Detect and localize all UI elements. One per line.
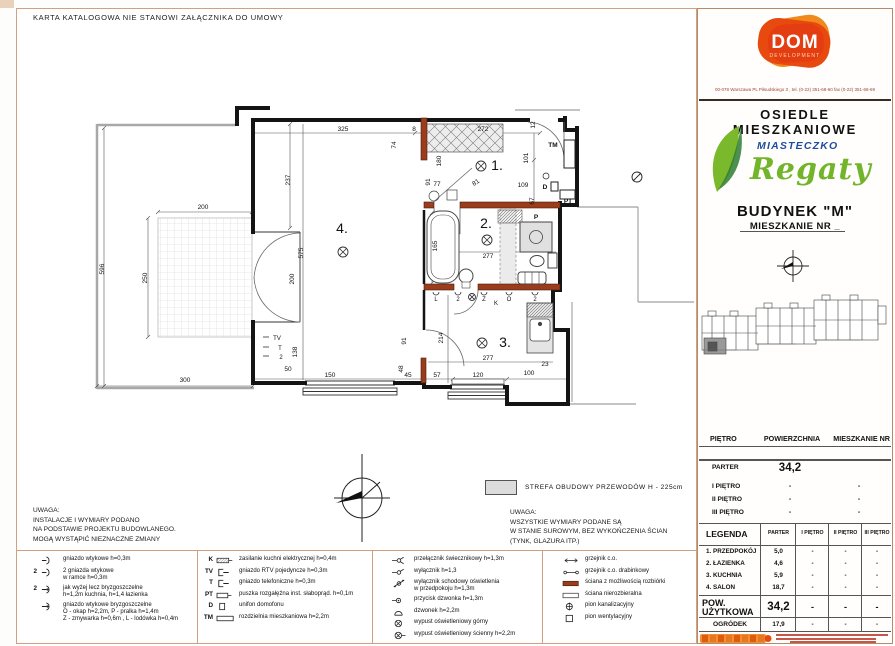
legend-item-text: wypust oświetleniowy ścienny h=2,2m (414, 631, 515, 638)
dimension-label: TM (548, 142, 557, 149)
ceiling-light-symbol (477, 338, 487, 348)
floor-table-row: II PIĘTRO-- (699, 494, 891, 507)
legend-item: 22 gniazda wtykowew ramce h=0,3m (26, 568, 194, 582)
terrace (158, 218, 252, 337)
legend-item: przełącznik świecznikowy h=1,3m (377, 556, 539, 565)
north-compass-icon (330, 452, 394, 544)
bell-icon (391, 608, 411, 617)
legend-col-walls: grzejnik c.o.grzejnik c.o. drabinkowyści… (548, 556, 694, 626)
address-divider (699, 99, 891, 101)
d-box (551, 182, 558, 191)
legend-item: wypust oświetleniowy górny (377, 619, 539, 628)
room-number-kuchnia: 3. (499, 334, 511, 350)
legend-item-text: wyłącznik schodowy oświetleniaw przedpok… (414, 579, 499, 593)
room-name: 1. PRZEDPOKÓJ (706, 548, 756, 555)
ogrodek-dash-3: - (862, 621, 892, 628)
brand-miasteczko: MIASTECZKO (757, 140, 838, 152)
bell-btn-icon (391, 596, 411, 605)
floor-table-row: I PIĘTRO-- (699, 481, 891, 494)
ceiling-light-symbol (338, 247, 348, 257)
light-symbols (338, 161, 492, 348)
dimension-label: 138 (292, 346, 299, 357)
ogrodek-value: 17,9 (761, 621, 796, 628)
dimension-label: 180 (436, 155, 443, 166)
dimension-label: P (534, 214, 539, 221)
kitchen-radiator (452, 379, 504, 384)
wall-brown-icon (562, 579, 582, 588)
dimension-label: 2 (533, 297, 537, 303)
legend-item: PTpuszka rozgałęźna inst. słaboprąd. h=0… (202, 591, 370, 600)
dimension-label: 57 (433, 372, 441, 379)
ceiling-light-symbol (476, 161, 486, 171)
legend-item: ściana nierozbieralna (548, 591, 694, 600)
dimension-label: 150 (325, 372, 336, 379)
pow-dash-3: - (862, 602, 892, 612)
pion-k-icon (562, 602, 582, 611)
room-area-value: - (829, 560, 862, 567)
legend-item: 2jak wyżej lecz bryzgoszczelneh=1,2m kuc… (26, 585, 194, 599)
socket-splash-icon (40, 585, 60, 594)
site-compass-icon (775, 250, 811, 282)
dimension-label: 2 (279, 355, 283, 361)
legend-item-text: przełącznik świecznikowy h=1,3m (414, 556, 504, 563)
title-underline (740, 231, 845, 232)
dimension-label: 200 (289, 273, 296, 284)
floor-table-cell: - (757, 496, 823, 503)
dimension-label: 8 (412, 126, 416, 133)
room-number-lazienka: 2. (480, 215, 492, 231)
floor-table-cell: - (831, 496, 887, 503)
footer-fineprint-line-3 (790, 641, 876, 643)
jack-icon (216, 568, 236, 577)
legend-item: grzejnik c.o. (548, 556, 694, 565)
floor-table-cell: 34,2 (757, 462, 823, 474)
legend-divider-3 (542, 550, 543, 644)
room-area-value: - (862, 584, 892, 591)
room-area-value: - (796, 572, 829, 579)
dimension-label: PT (564, 198, 572, 205)
room-number-salon: 4. (336, 220, 348, 236)
legend-item-text: rozdzielnia mieszkaniowa h=2,2m (239, 614, 329, 621)
dimension-label: 109 (518, 182, 529, 189)
legend-item-text: grzejnik c.o. (585, 556, 617, 563)
dimension-label: 596 (99, 263, 106, 274)
socket-icon (40, 568, 60, 577)
dimension-label: 50 (284, 366, 292, 373)
note-dimensions: UWAGA: WSZYSTKIE WYMIARY PODANE SĄ W STA… (510, 508, 695, 546)
brand-regaty: Regaty (750, 152, 872, 187)
pow-dash-2: - (829, 602, 862, 612)
legend-item-prefix: T (202, 579, 213, 586)
ceiling-light-symbol (482, 235, 492, 245)
legend-item-text: gniazdo wtykowe bryzgoszczelneO - okap h… (63, 602, 178, 624)
room-area-value: 5,0 (761, 548, 796, 555)
dimension-label: 67 (529, 197, 536, 205)
dimension-label: 300 (180, 377, 191, 384)
legend-table-title: LEGENDA (706, 529, 748, 539)
legend-table-bottom (699, 631, 891, 632)
legend-item-prefix: TM (202, 614, 213, 621)
dimension-label: 101 (523, 152, 530, 163)
floor-table-line-1 (699, 446, 891, 447)
room-area-value: 4,6 (761, 560, 796, 567)
washing-machine (520, 222, 552, 252)
legend-item-text: dzwonek h=2,2m (414, 608, 460, 615)
dimension-label: 77 (433, 181, 441, 188)
room-area-value: - (829, 572, 862, 579)
ptbox-icon (216, 591, 236, 600)
duct-zone-note: STREFA OBUDOWY PRZEWODÓW H - 225cm (485, 479, 683, 497)
dimension-label: 575 (298, 247, 305, 258)
legend-vline-1 (760, 523, 761, 631)
legend-item-text: unifon domofonu (239, 602, 284, 609)
legend-divider-1 (197, 550, 198, 644)
outer-walls (237, 108, 577, 404)
legend-item: wyłącznik schodowy oświetleniaw przedpok… (377, 579, 539, 593)
svg-text:DEVELOPMENT: DEVELOPMENT (770, 53, 821, 59)
floor-table-row: PARTER34,2 (699, 462, 891, 481)
floor-table-row: III PIĘTRO-- (699, 507, 891, 520)
legend-item: wyłącznik h=1,3 (377, 568, 539, 577)
company-address: 00-078 Warszawa PL Piłsudskiego 3 , tel.… (707, 88, 884, 93)
room-name: 3. KUCHNIA (706, 572, 742, 579)
dom-development-logo: DOM DEVELOPMENT (748, 10, 843, 76)
windows (253, 232, 508, 399)
legend-item: pion wentylacyjny (548, 614, 694, 623)
frame-corner-chip (0, 0, 14, 8)
legend-item-text: przycisk dzwonka h=1,3m (414, 596, 483, 603)
site-plan (700, 286, 890, 372)
room-area-value: - (829, 548, 862, 555)
floor-table-header-powierzchnia: POWIERZCHNIA (757, 434, 827, 443)
room-area-value: - (796, 548, 829, 555)
room-name: 2. ŁAZIENKA (706, 560, 745, 567)
legend-vline-2 (795, 523, 796, 631)
legend-col-switches: przełącznik świecznikowy h=1,3mwyłącznik… (377, 556, 539, 643)
dimension-label: 250 (142, 272, 149, 283)
footer-fineprint-line-1 (776, 634, 888, 636)
light-wall-icon (391, 631, 411, 640)
legend-item-prefix: 2 (26, 568, 37, 575)
dimension-label: TV (273, 336, 281, 342)
jack-icon (216, 579, 236, 588)
room-area-value: 5,9 (761, 572, 796, 579)
pow-dash-1: - (796, 602, 829, 612)
footer-fineprint-line-2 (776, 638, 876, 640)
dimension-label: 277 (483, 253, 494, 260)
ceiling-light-symbol (469, 294, 476, 301)
legend-item: pion kanalizacyjny (548, 602, 694, 611)
ogrodek-dash-2: - (829, 621, 862, 628)
dimension-label: 277 (483, 355, 494, 362)
dimension-label: 214 (438, 332, 445, 343)
legend-item-text: wypust oświetleniowy górny (414, 619, 488, 626)
legend-item: Kzasilanie kuchni elektrycznej h=0,4m (202, 556, 370, 565)
dimension-label: 91 (425, 178, 432, 186)
room-area-value: - (796, 584, 829, 591)
legend-item-text: zasilanie kuchni elektrycznej h=0,4m (239, 556, 337, 563)
legend-item-prefix: D (202, 602, 213, 609)
legend-item-text: 2 gniazda wtykowew ramce h=0,3m (63, 568, 114, 582)
ogrodek-label: OGRÓDEK (699, 621, 761, 628)
room-area-value: 18,7 (761, 584, 796, 591)
floor-table-line-2 (699, 459, 891, 461)
legend-item: przycisk dzwonka h=1,3m (377, 596, 539, 605)
tm-box (564, 140, 575, 168)
legend-item-text: puszka rozgałęźna inst. słaboprąd. h=0,1… (239, 591, 353, 598)
washbasin (459, 269, 473, 283)
sw-double-icon (391, 556, 411, 565)
legend-top-border (16, 550, 697, 551)
duct-zone-hatch (424, 124, 503, 152)
dimension-label: 81 (471, 178, 481, 188)
legend-item-prefix: PT (202, 591, 213, 598)
floor-table-header-mieszkanie: MIESZKANIE NR (832, 434, 890, 443)
socket-icon (40, 556, 60, 565)
pion-w-icon (562, 614, 582, 623)
legend-item-text: pion wentylacyjny (585, 614, 632, 621)
dimension-label: 200 (198, 204, 209, 211)
legend-item: wypust oświetleniowy ścienny h=2,2m (377, 631, 539, 640)
footer-logo (700, 633, 772, 644)
legend-col-header-p1: I PIĘTRO (796, 530, 829, 536)
legend-item-text: jak wyżej lecz bryzgoszczelneh=1,2m kuch… (63, 585, 148, 599)
door-arcs (254, 122, 564, 366)
legend-item: Tgniazdo telefoniczne h=0,3m (202, 579, 370, 588)
floor-table-cell: II PIĘTRO (712, 496, 742, 503)
room-area-value: - (862, 548, 892, 555)
dimension-label: 272 (478, 126, 489, 133)
duct-zone-swatch (485, 480, 517, 495)
duct-zone-label: STREFA OBUDOWY PRZEWODÓW H - 225cm (525, 484, 683, 491)
light-top-icon (391, 619, 411, 628)
hall-fixture (429, 191, 439, 201)
legend-item-text: gniazdo telefoniczne h=0,3m (239, 579, 316, 586)
room-area-value: - (829, 584, 862, 591)
legend-item: Dunifon domofonu (202, 602, 370, 611)
legend-col-header-p2: II PIĘTRO (829, 530, 862, 536)
wall-white-icon (562, 591, 582, 600)
dimension-label: 325 (338, 126, 349, 133)
room-area-value: - (862, 572, 892, 579)
legend-item-prefix: TV (202, 568, 213, 575)
legend-vline-3 (828, 523, 829, 631)
dimension-label: 12 (530, 121, 537, 129)
building-title: BUDYNEK "M" (697, 203, 893, 220)
floor-plan: 3258742721218010191778110967237575200200… (85, 88, 697, 440)
floor-table-cell: I PIĘTRO (712, 483, 740, 490)
kbox-icon (216, 556, 236, 565)
dimension-label: T (278, 346, 282, 352)
tmbox-icon (216, 614, 236, 623)
socket-splash-icon (40, 602, 60, 611)
room-area-value: - (862, 560, 892, 567)
floor-table-cell: PARTER (712, 464, 739, 471)
dimension-label: 91 (401, 337, 408, 345)
ogrodek-dash-1: - (796, 621, 829, 628)
dimension-label: Z (482, 297, 486, 303)
dimension-label: 165 (432, 240, 439, 251)
legend-item-text: gniazdo wtykowe h=0,3m (63, 556, 131, 563)
legend-item: TMrozdzielnia mieszkaniowa h=2,2m (202, 614, 370, 623)
dimension-label: 120 (473, 372, 484, 379)
room-name: 4. SALON (706, 584, 735, 591)
dimension-label: 2 (456, 297, 460, 303)
legend-item: grzejnik c.o. drabinkowy (548, 568, 694, 577)
legend-col-header-parter: PARTER (761, 530, 796, 536)
legend-vline-4 (861, 523, 862, 631)
dimension-label: D (543, 184, 548, 191)
legend-item: TVgniazdo RTV pojedyncze h=0,3m (202, 568, 370, 577)
dimension-label: 100 (524, 370, 535, 377)
legend-col-header-p3: III PIĘTRO (862, 530, 892, 536)
floor-table-cell: - (757, 483, 823, 490)
legend-item-text: wyłącznik h=1,3 (414, 568, 457, 575)
toilet (530, 256, 544, 267)
floor-table-cell: - (757, 509, 823, 516)
svg-text:DOM: DOM (771, 32, 818, 53)
dimension-label: 45 (404, 372, 412, 379)
sw-icon (391, 568, 411, 577)
catalog-sheet: KARTA KATALOGOWA NIE STANOWI ZAŁĄCZNIKA … (0, 0, 895, 646)
dimension-label: O (507, 297, 512, 303)
legend-col-boxes: Kzasilanie kuchni elektrycznej h=0,4mTVg… (202, 556, 370, 626)
legend-item: gniazdo wtykowe bryzgoszczelneO - okap h… (26, 602, 194, 624)
dimension-label: L (434, 297, 438, 303)
legend-item-prefix: 2 (26, 585, 37, 592)
pow-uzytkowa-label: POW. UŻYTKOWA (702, 599, 754, 617)
dimension-label: 74 (391, 141, 398, 149)
legend-divider-2 (372, 550, 373, 644)
legend-col-sockets: gniazdo wtykowe h=0,3m22 gniazda wtykowe… (26, 556, 194, 626)
rad-ladder-icon (562, 568, 582, 577)
floor-table-rows: PARTER34,2I PIĘTRO--II PIĘTRO--III PIĘTR… (699, 462, 891, 520)
room-number-przedpokoj: 1. (491, 157, 503, 173)
legend-item: dzwonek h=2,2m (377, 608, 539, 617)
floor-table-header-pietro: PIĘTRO (710, 434, 737, 443)
legend-item-text: pion kanalizacyjny (585, 602, 634, 609)
legend-item: gniazdo wtykowe h=0,3m (26, 556, 194, 565)
dimension-label: 23 (541, 361, 549, 368)
disclaimer-text: KARTA KATALOGOWA NIE STANOWI ZAŁĄCZNIKA … (33, 13, 283, 22)
note-installations: UWAGA: INSTALACJE I WYMIARY PODANO NA PO… (33, 506, 233, 544)
dimension-label: K (494, 301, 498, 307)
legend-item: ściana z możliwością rozbiórki (548, 579, 694, 588)
pow-uzytkowa-value: 34,2 (761, 601, 796, 613)
dbox-icon (216, 602, 236, 611)
regaty-leaf-icon (705, 124, 747, 194)
bath-hatch-box (498, 210, 522, 223)
legend-item-text: grzejnik c.o. drabinkowy (585, 568, 649, 575)
sw-stair-icon (391, 579, 411, 588)
rad-icon (562, 556, 582, 565)
room-area-value: - (796, 560, 829, 567)
dimension-label: 237 (285, 174, 292, 185)
legend-item-text: ściana z możliwością rozbiórki (585, 579, 665, 586)
legend-item-prefix: K (202, 556, 213, 563)
floor-table-cell: - (831, 483, 887, 490)
legend-item-text: gniazdo RTV pojedyncze h=0,3m (239, 568, 327, 575)
legend-item-text: ściana nierozbieralna (585, 591, 642, 598)
floor-table-cell: - (831, 509, 887, 516)
floor-table-cell: III PIĘTRO (712, 509, 744, 516)
